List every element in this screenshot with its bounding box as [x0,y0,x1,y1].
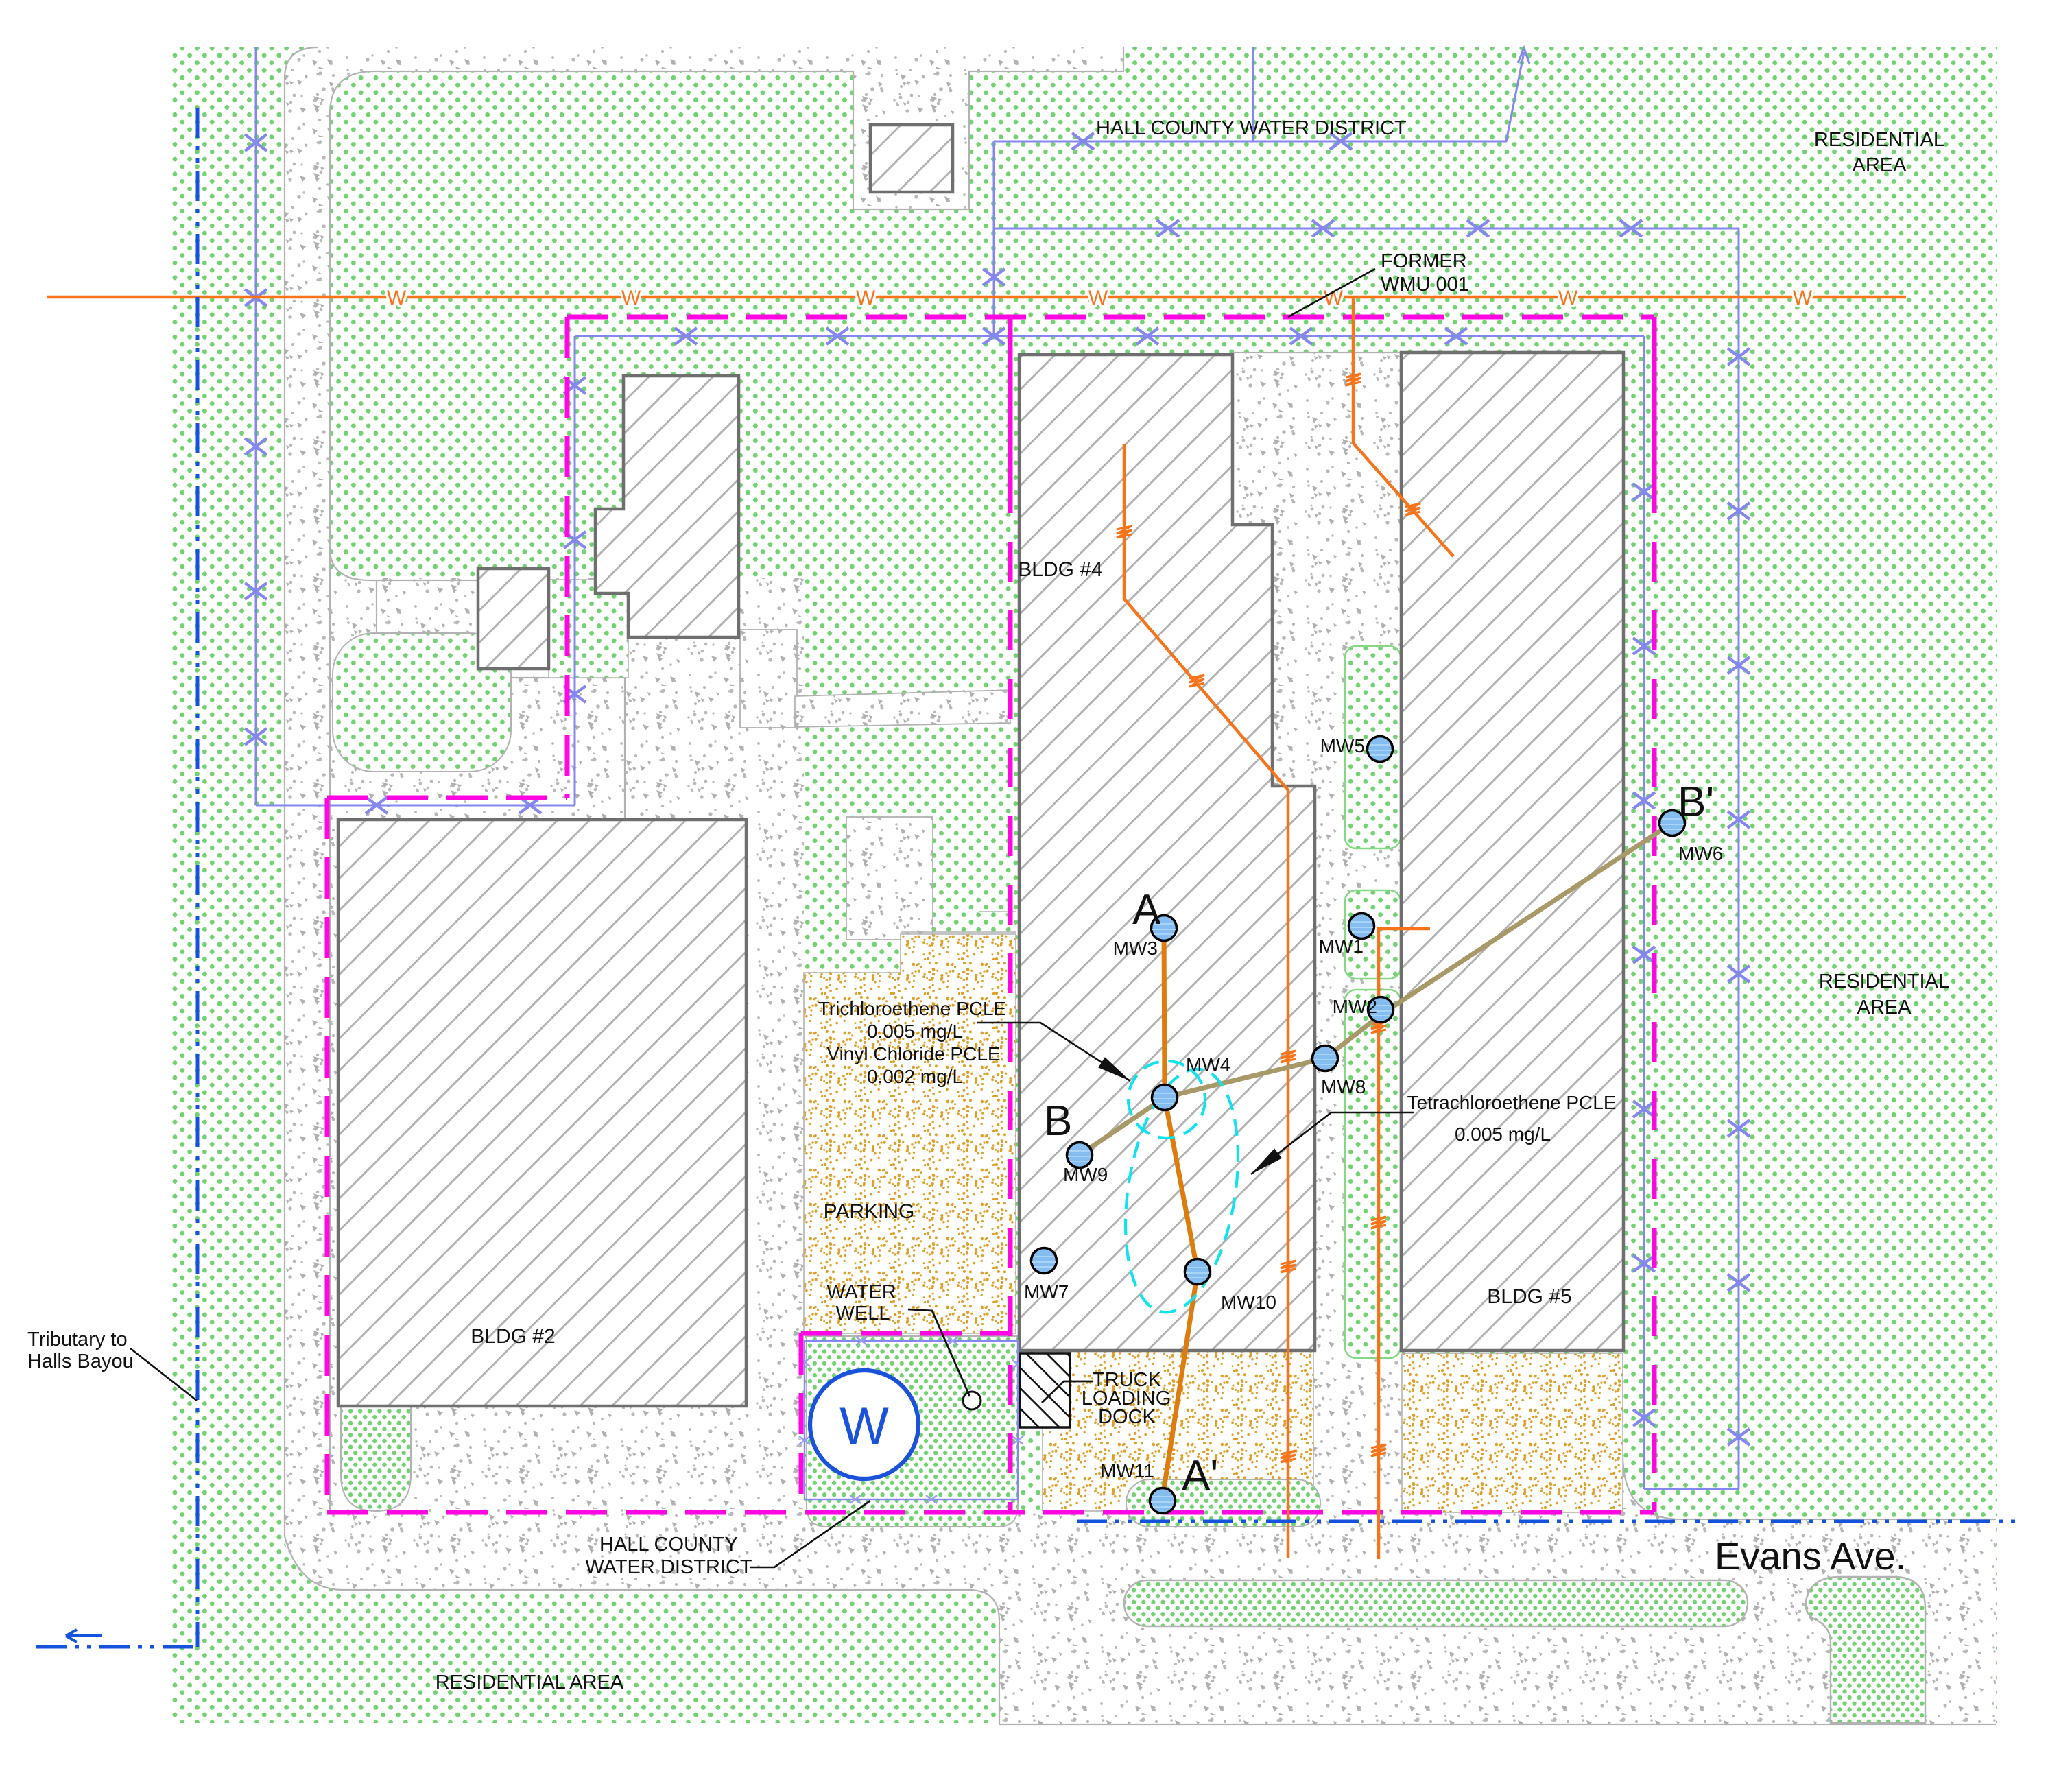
svg-text:W: W [387,287,407,309]
svg-text:HALL COUNTY WATER DISTRICT: HALL COUNTY WATER DISTRICT [1096,117,1407,139]
svg-text:WELL: WELL [836,1302,890,1324]
svg-text:PARKING: PARKING [824,1200,915,1223]
svg-text:A': A' [1182,1452,1218,1499]
svg-text:BLDG #4: BLDG #4 [1018,558,1102,581]
svg-text:MW11: MW11 [1100,1460,1154,1482]
svg-text:DOCK: DOCK [1098,1406,1156,1428]
svg-text:MW2: MW2 [1333,996,1377,1017]
svg-text:AREA: AREA [1853,154,1907,176]
svg-text:WATER: WATER [826,1281,896,1303]
svg-text:Vinyl Chloride PCLE: Vinyl Chloride PCLE [826,1043,1000,1064]
svg-text:RESIDENTIAL AREA: RESIDENTIAL AREA [436,1671,624,1693]
svg-text:AREA: AREA [1857,997,1912,1019]
svg-text:W: W [856,287,876,309]
svg-text:MW4: MW4 [1186,1054,1230,1075]
svg-text:MW9: MW9 [1063,1164,1108,1185]
svg-text:Tetrachloroethene PCLE: Tetrachloroethene PCLE [1407,1092,1616,1113]
svg-text:Evans Ave.: Evans Ave. [1715,1534,1906,1578]
svg-text:0.002 mg/L: 0.002 mg/L [867,1066,963,1087]
svg-text:Trichloroethene PCLE: Trichloroethene PCLE [818,998,1006,1019]
svg-text:BLDG #5: BLDG #5 [1487,1285,1571,1308]
svg-text:BLDG #2: BLDG #2 [471,1325,555,1348]
svg-text:W: W [1088,287,1108,309]
svg-text:A: A [1132,886,1161,933]
svg-text:MW6: MW6 [1678,843,1723,864]
svg-text:MW3: MW3 [1113,938,1158,959]
svg-text:RESIDENTIAL: RESIDENTIAL [1814,129,1944,151]
svg-text:RESIDENTIAL: RESIDENTIAL [1819,971,1949,992]
svg-text:W: W [839,1397,889,1455]
svg-text:MW1: MW1 [1319,936,1364,957]
svg-text:B: B [1044,1097,1072,1145]
svg-text:Tributary to: Tributary to [27,1329,128,1350]
svg-text:MW7: MW7 [1024,1281,1069,1302]
svg-text:0.005 mg/L: 0.005 mg/L [867,1021,963,1042]
svg-text:MW5: MW5 [1320,735,1365,757]
svg-text:W: W [1793,287,1813,309]
svg-text:B': B' [1678,778,1714,826]
svg-text:0.005 mg/L: 0.005 mg/L [1455,1123,1551,1145]
svg-text:HALL COUNTY: HALL COUNTY [599,1534,738,1556]
svg-text:W: W [1558,287,1578,309]
svg-text:FORMER: FORMER [1381,250,1467,272]
svg-text:Halls Bayou: Halls Bayou [27,1350,134,1372]
svg-text:WMU 001: WMU 001 [1381,274,1469,296]
svg-text:W: W [621,287,641,309]
svg-text:WATER DISTRICT: WATER DISTRICT [585,1556,752,1578]
svg-text:W: W [1324,287,1344,309]
svg-text:MW10: MW10 [1221,1292,1276,1313]
svg-text:MW8: MW8 [1321,1076,1366,1097]
